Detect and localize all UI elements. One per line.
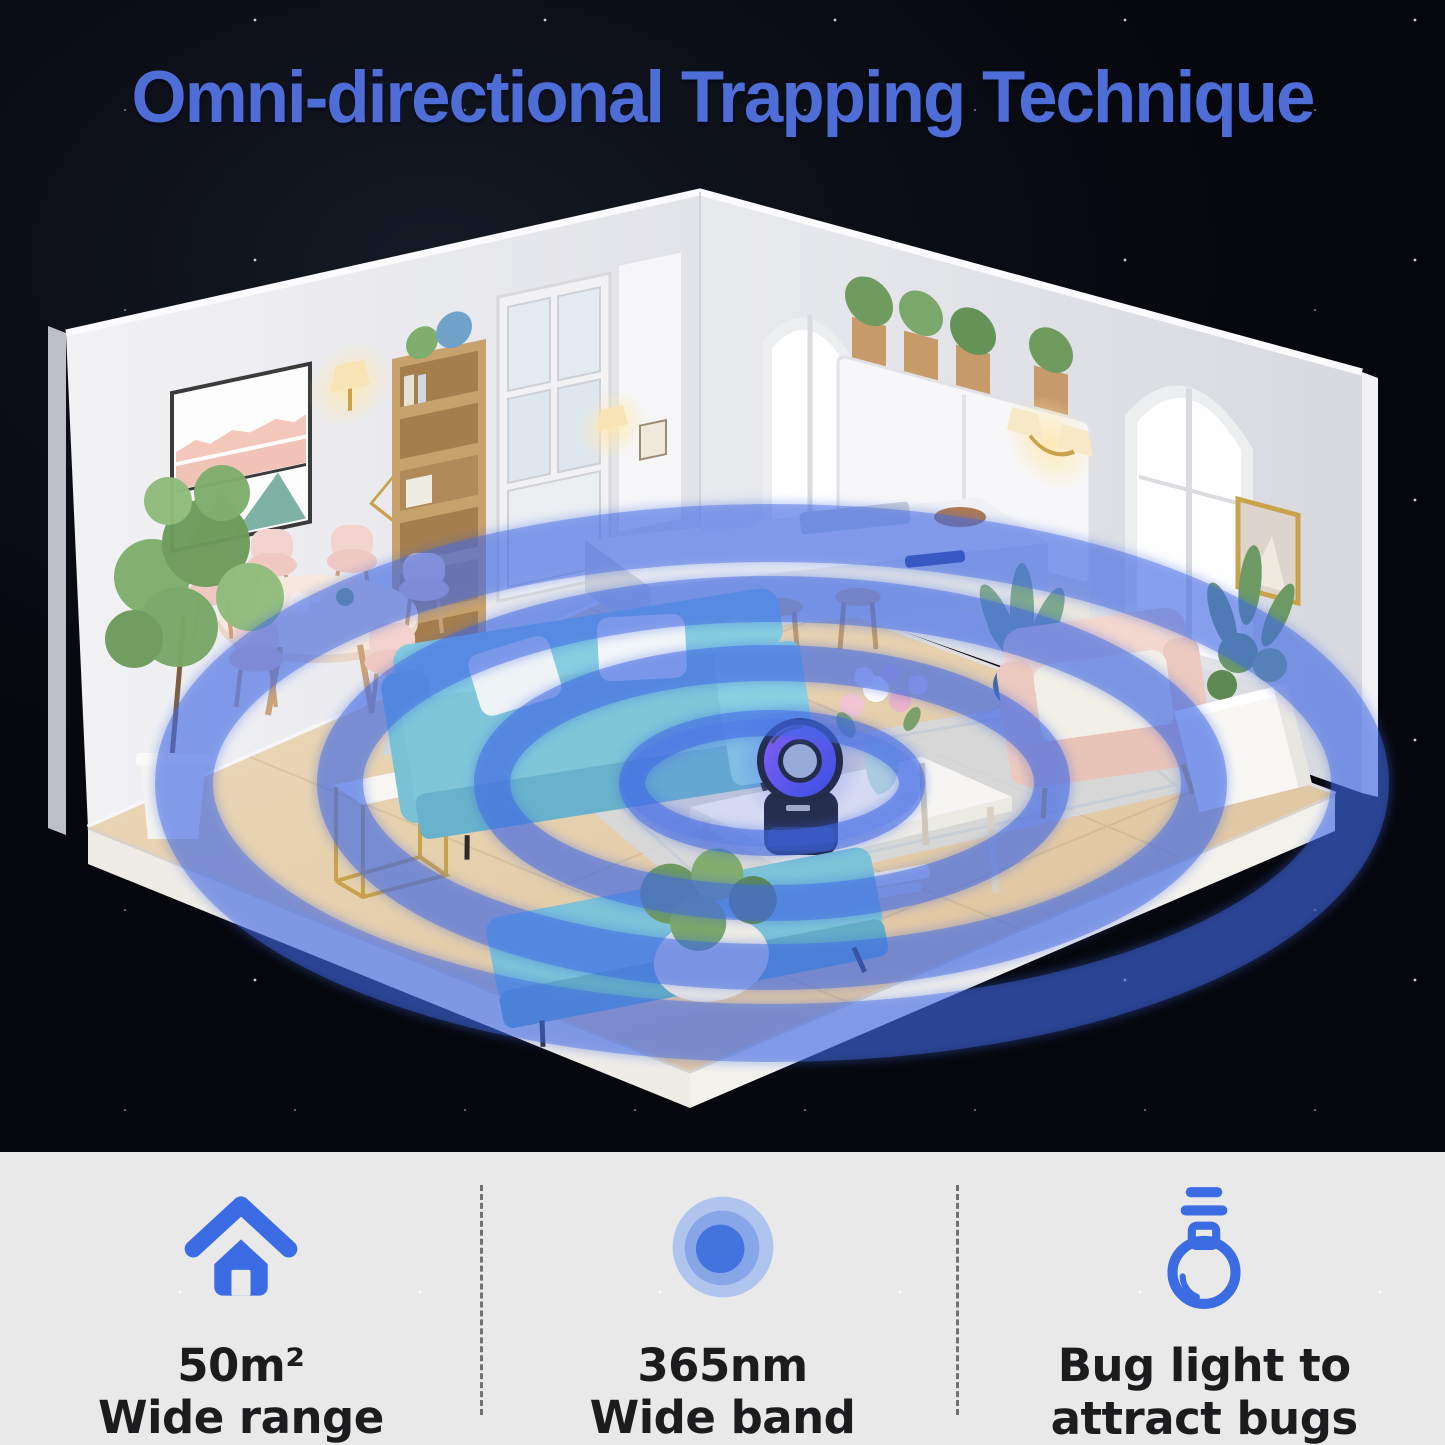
feature-value: Bug light to [1051,1340,1358,1393]
product-infographic: Omni-directional Trapping Technique [0,0,1445,1445]
room-scene [0,145,1445,1155]
dashed-divider [956,1185,959,1415]
dashed-divider [480,1185,483,1415]
feature-label: Wide band [590,1392,856,1445]
feature-bug-light: Bug light to attract bugs [963,1152,1445,1445]
feature-value: 50m² [98,1340,384,1393]
house-icon [178,1189,304,1305]
page-title: Omni-directional Trapping Technique [22,56,1424,139]
feature-wide-band: 365nm Wide band [482,1152,964,1445]
concentric-circles-icon [667,1191,779,1303]
feature-wide-range: 50m² Wide range [0,1152,482,1445]
light-bulb-icon [1154,1183,1254,1311]
feature-label: attract bugs [1051,1393,1358,1445]
wave-rings [184,533,1360,1033]
feature-value: 365nm [590,1340,856,1393]
feature-label: Wide range [98,1392,384,1445]
feature-bar: 50m² Wide range 365nm Wide band [0,1152,1445,1445]
